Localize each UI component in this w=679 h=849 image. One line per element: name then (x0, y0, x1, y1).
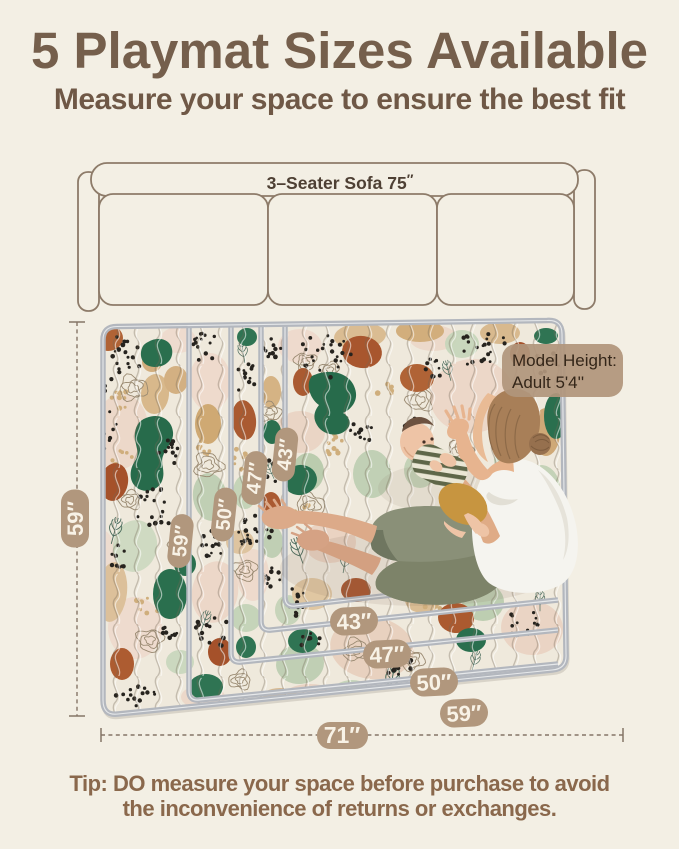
svg-text:47″: 47″ (243, 461, 268, 495)
svg-text:59″: 59″ (169, 524, 194, 558)
svg-text:3–Seater Sofa 75″: 3–Seater Sofa 75″ (267, 171, 414, 193)
svg-text:50″: 50″ (416, 669, 453, 696)
svg-text:Adult 5'4'': Adult 5'4'' (512, 373, 584, 392)
svg-text:59″: 59″ (446, 700, 483, 727)
svg-text:43″: 43″ (273, 437, 298, 471)
svg-text:59″: 59″ (63, 501, 88, 536)
svg-text:50″: 50″ (212, 497, 237, 531)
svg-text:43″: 43″ (336, 608, 373, 635)
svg-text:71″: 71″ (324, 722, 361, 748)
svg-text:47″: 47″ (369, 641, 406, 668)
svg-text:Model Height:: Model Height: (512, 351, 617, 370)
